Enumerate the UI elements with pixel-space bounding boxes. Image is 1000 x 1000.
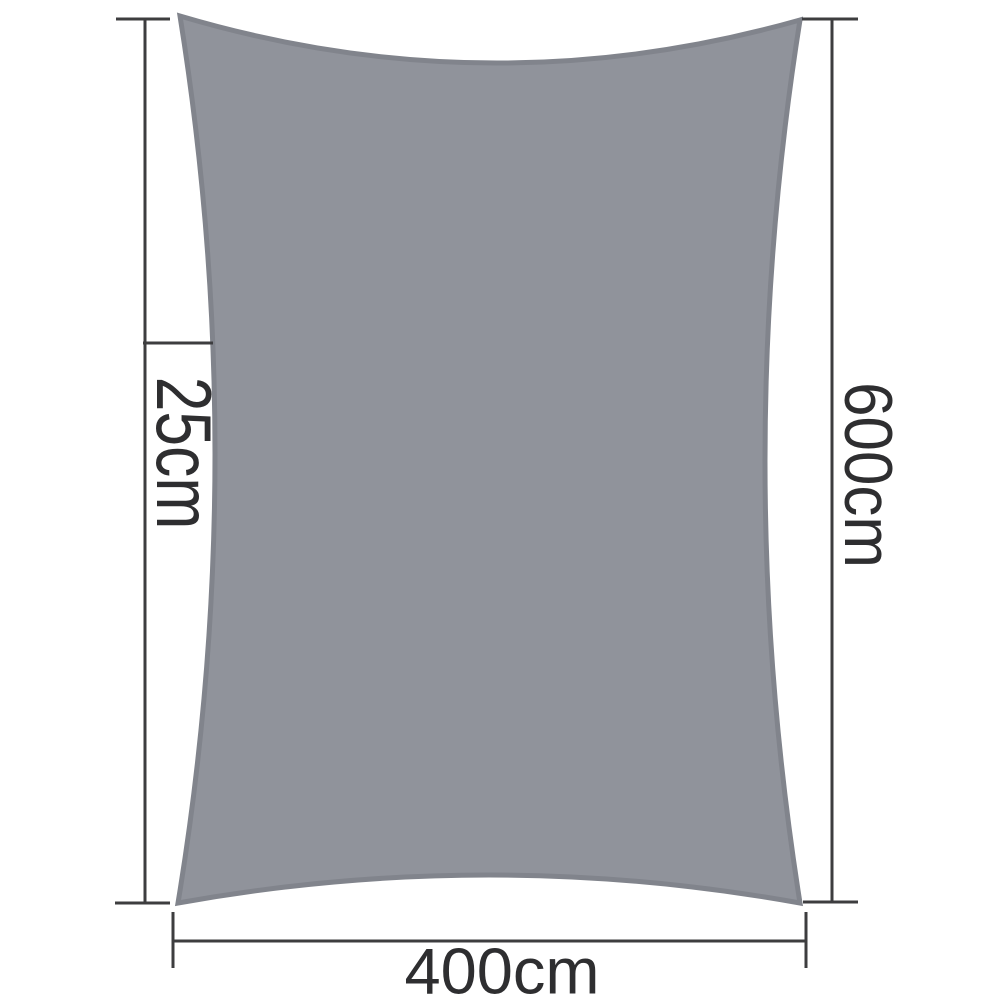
dimension-diagram: 25cm 600cm 400cm (0, 0, 1000, 1000)
height-dimension-label: 600cm (834, 382, 902, 568)
shade-sail-shape (178, 16, 800, 903)
width-dimension-label: 400cm (404, 939, 599, 1000)
left-dimension-label: 25cm (145, 377, 223, 530)
